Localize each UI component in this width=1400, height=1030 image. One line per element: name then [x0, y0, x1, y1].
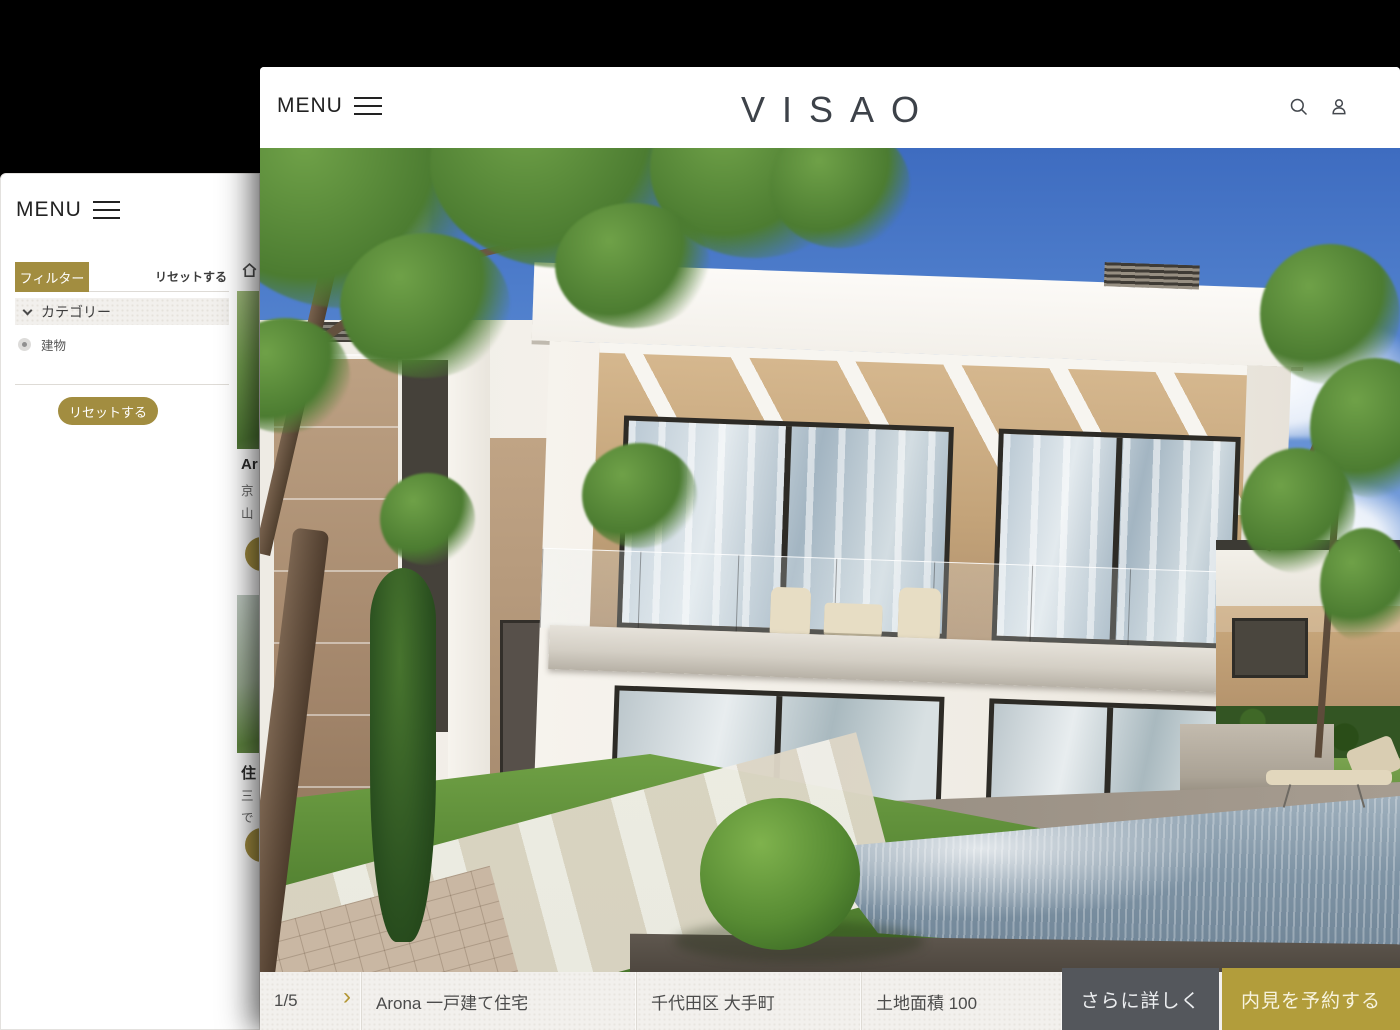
- listing-address-line: で: [241, 807, 254, 826]
- filter-reset-button[interactable]: リセットする: [58, 397, 158, 425]
- property-location: 千代田区 大手町: [637, 972, 862, 1030]
- menu-button[interactable]: MENU: [16, 198, 120, 222]
- property-land-area: 土地面積 100: [862, 972, 1062, 1030]
- balcony-table: [824, 603, 883, 635]
- listing-cta-button[interactable]: [245, 537, 260, 571]
- filter-header-row: フィルター リセットする: [15, 262, 229, 292]
- listing-thumbnail[interactable]: [237, 291, 260, 449]
- property-photo: [260, 148, 1400, 972]
- search-icon[interactable]: [1288, 97, 1310, 119]
- site-logo[interactable]: VISAO: [260, 89, 1400, 131]
- property-land-area-text: 土地面積 100: [876, 989, 977, 1014]
- filter-reset-link[interactable]: リセットする: [155, 268, 227, 285]
- desktop-background: MENU フィルター リセットする カテゴリー 建物 リセットする A: [0, 0, 1400, 1030]
- listing-results-strip: Ar 京 山 住 三 で: [237, 174, 260, 1030]
- radio-selected-icon: [18, 338, 31, 351]
- property-info-bar: 1/5 › Arona 一戸建て住宅 千代田区 大手町 土地面積 100 さらに…: [260, 972, 1400, 1030]
- balcony-chair: [770, 587, 812, 634]
- listing-address-line: 三: [241, 785, 254, 804]
- category-accordion-header[interactable]: カテゴリー: [15, 298, 229, 325]
- listing-title: 住: [241, 762, 256, 783]
- chevron-down-icon: [23, 305, 33, 315]
- category-option-label: 建物: [41, 335, 66, 354]
- listing-address-line: 京: [241, 480, 254, 499]
- round-bush: [700, 798, 860, 950]
- property-name: Arona 一戸建て住宅: [362, 972, 637, 1030]
- balcony-chair: [898, 587, 942, 638]
- next-photo-chevron-icon[interactable]: ›: [343, 985, 351, 1009]
- hamburger-icon: [93, 201, 120, 219]
- photo-page-indicator: 1/5: [274, 991, 298, 1011]
- photo-pager: 1/5 ›: [260, 972, 362, 1030]
- property-location-text: 千代田区 大手町: [651, 989, 775, 1014]
- property-detail-window: MENU VISAO: [260, 67, 1400, 1030]
- site-header: MENU VISAO: [260, 67, 1400, 148]
- lounge-chair: [1262, 746, 1400, 818]
- category-option-building[interactable]: 建物: [18, 335, 66, 354]
- book-viewing-button[interactable]: 内見を予約する: [1222, 968, 1400, 1030]
- roof-vent: [1104, 262, 1200, 289]
- category-label: カテゴリー: [41, 302, 111, 322]
- listing-page-window: MENU フィルター リセットする カテゴリー 建物 リセットする A: [0, 173, 260, 1030]
- filter-tab[interactable]: フィルター: [15, 262, 89, 292]
- user-icon[interactable]: [1328, 97, 1350, 119]
- listing-cta-button[interactable]: [245, 828, 260, 862]
- listing-thumbnail[interactable]: [237, 595, 260, 753]
- menu-label: MENU: [16, 198, 82, 222]
- listing-title: Ar: [241, 456, 258, 473]
- listing-address-line: 山: [241, 503, 254, 522]
- divider: [15, 384, 229, 385]
- details-button[interactable]: さらに詳しく: [1062, 968, 1219, 1030]
- property-name-text: Arona 一戸建て住宅: [376, 989, 528, 1014]
- annex-window: [1232, 618, 1308, 678]
- cypress-tree: [370, 568, 436, 942]
